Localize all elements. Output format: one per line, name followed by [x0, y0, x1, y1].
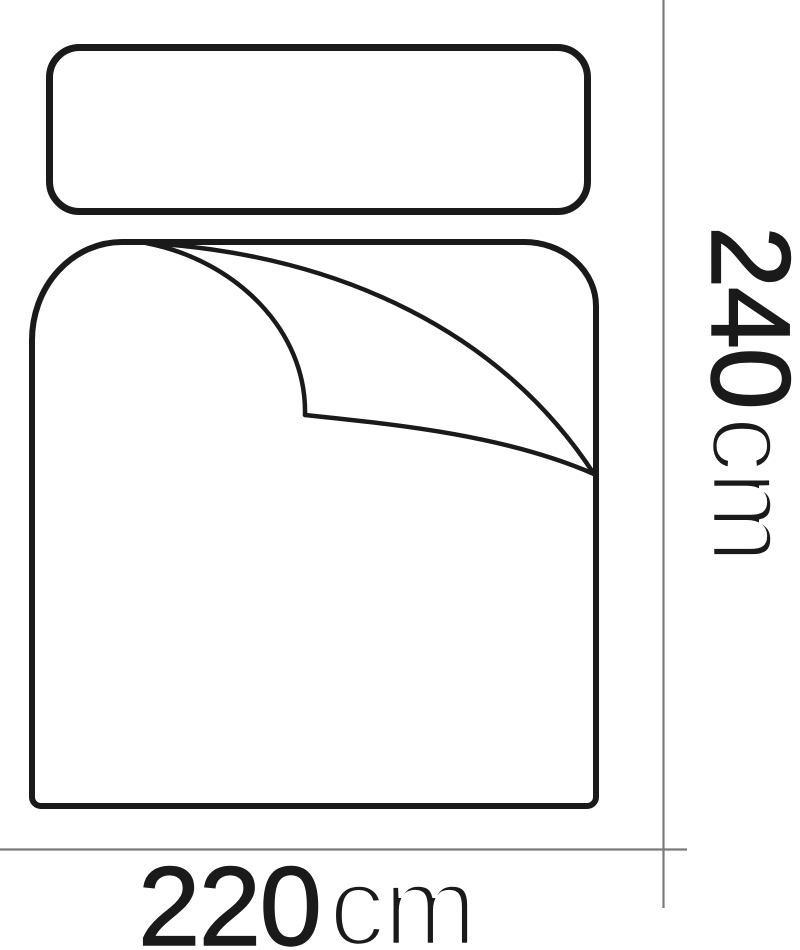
- width-dimension-label: 220 cm: [138, 844, 475, 950]
- diagram-canvas: 220 cm 240 cm: [0, 0, 800, 950]
- width-unit-text: cm: [329, 844, 475, 950]
- height-dimension-label: 240 cm: [688, 226, 800, 562]
- height-value-text: 240: [688, 226, 800, 408]
- bedding-dimension-diagram: 220 cm 240 cm: [0, 0, 800, 950]
- duvet-fold-left-edge: [146, 243, 305, 415]
- width-value-text: 220: [138, 844, 320, 950]
- duvet-outline: [32, 242, 596, 806]
- height-unit-text: cm: [688, 416, 800, 562]
- pillow-outline: [50, 48, 588, 212]
- duvet-fold-lower-edge: [305, 415, 594, 474]
